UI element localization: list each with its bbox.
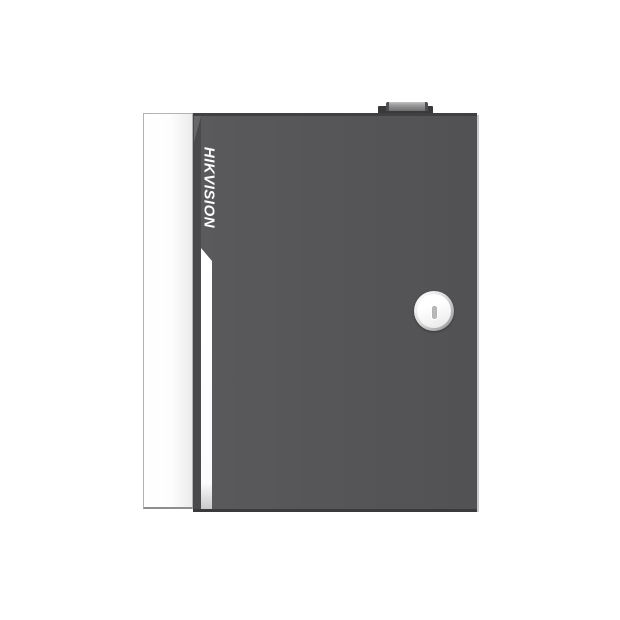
- door-keylock: [414, 291, 454, 331]
- top-hinge-bar: [386, 102, 428, 111]
- door-top-edge: [193, 113, 477, 116]
- door-bottom-edge: [193, 509, 477, 512]
- keyhole-icon: [432, 306, 437, 319]
- brand-logo: HIKVISION: [200, 145, 219, 231]
- door-right-edge-highlight: [477, 115, 479, 512]
- enclosure-side-panel: [143, 113, 193, 509]
- door-accent-stripe: [201, 248, 212, 509]
- keylock-face: [417, 294, 451, 328]
- product-photo: HIKVISION: [0, 0, 620, 620]
